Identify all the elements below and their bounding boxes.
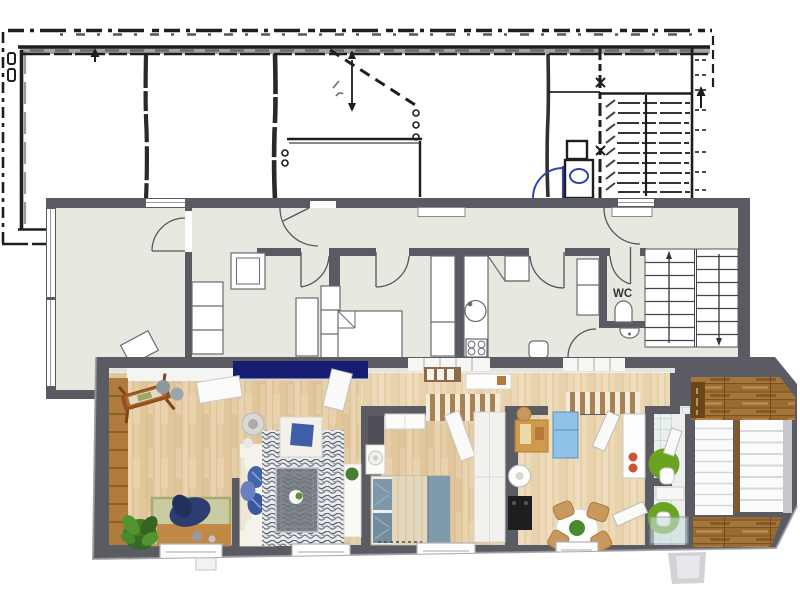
svg-text:WC: WC: [613, 288, 632, 300]
